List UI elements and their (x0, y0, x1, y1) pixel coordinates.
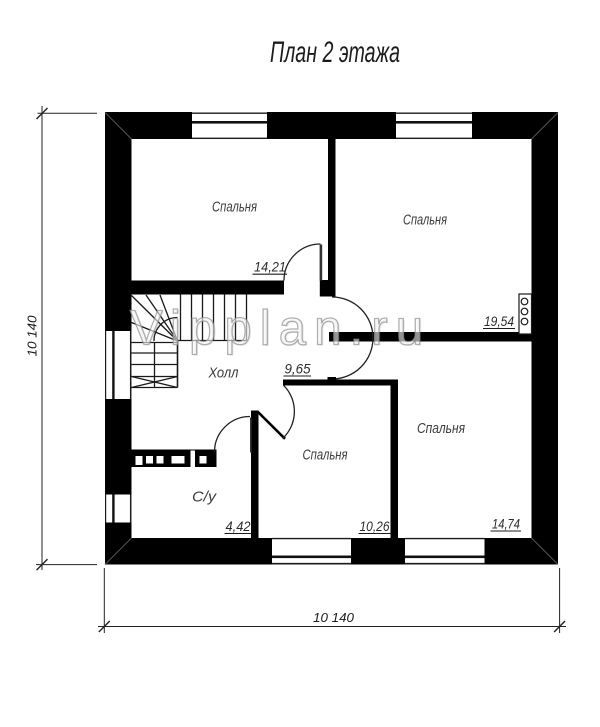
svg-text:4,42: 4,42 (226, 518, 251, 534)
svg-text:10,26: 10,26 (360, 518, 390, 534)
svg-text:10 140: 10 140 (26, 315, 40, 356)
svg-text:Спальня: Спальня (212, 200, 257, 216)
svg-text:19,54: 19,54 (484, 313, 514, 329)
svg-text:Спальня: Спальня (303, 448, 348, 464)
svg-text:Спальня: Спальня (403, 213, 447, 229)
svg-text:С/у: С/у (192, 489, 218, 506)
svg-text:10 140: 10 140 (313, 611, 354, 625)
svg-text:14,74: 14,74 (492, 516, 520, 532)
svg-text:14,21: 14,21 (254, 259, 286, 275)
svg-text:Спальня: Спальня (417, 421, 465, 437)
svg-text:Холл: Холл (208, 365, 239, 382)
svg-text:План 2 этажа: План 2 этажа (270, 36, 400, 69)
svg-text:9,65: 9,65 (285, 361, 311, 377)
